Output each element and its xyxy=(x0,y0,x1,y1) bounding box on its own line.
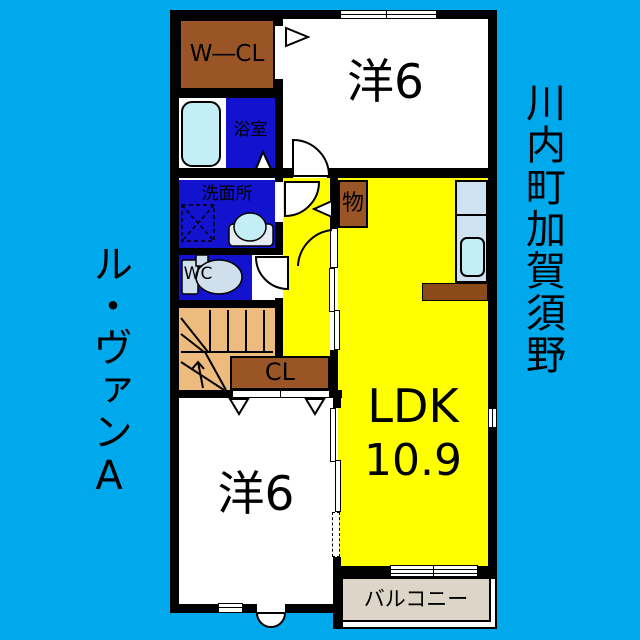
wall-mid-horiz-b xyxy=(327,168,488,178)
slide-door-hall-2 xyxy=(334,310,340,350)
ldk-size-label: 10.9 xyxy=(338,438,488,484)
swing-door-leaf xyxy=(330,228,338,268)
floorplan-canvas: W―CL 浴室 洗面所 WC 物 CL 洋6 洋6 LDK 10.9 バルコニー… xyxy=(0,0,640,640)
washroom-label: 洗面所 xyxy=(179,186,275,204)
window-balcony-tick xyxy=(433,565,434,577)
open-wall-dashed xyxy=(332,512,340,557)
closet-door-band xyxy=(232,390,330,398)
window-balcony-line1 xyxy=(390,569,478,570)
wall-bottom-a xyxy=(170,604,218,613)
wall-col-b xyxy=(275,80,283,182)
ldk-label: LDK xyxy=(338,382,488,430)
wcl-label: W―CL xyxy=(179,42,275,66)
bath-label: 浴室 xyxy=(226,122,275,140)
entry-door-opening xyxy=(257,604,285,613)
wall-under-wcl xyxy=(179,90,275,98)
window-right-line xyxy=(492,408,493,428)
wall-left xyxy=(170,10,179,613)
western-top-label: 洋6 xyxy=(283,58,488,107)
window-top-line xyxy=(340,14,437,15)
wcl-door-opening xyxy=(275,25,283,80)
window-bottom-line xyxy=(218,607,243,608)
wall-col-c xyxy=(275,222,283,255)
wall-top-a xyxy=(170,10,340,19)
closet-label: CL xyxy=(230,360,330,385)
building-name-label: ル・ヴァンA xyxy=(80,243,138,501)
window-balcony-line2 xyxy=(390,573,478,574)
entry-door-arc xyxy=(257,613,285,627)
kitchen-divider xyxy=(455,214,488,216)
western-bottom-label: 洋6 xyxy=(179,470,333,519)
window-bottom xyxy=(218,603,243,613)
wall-hall-ldk-a xyxy=(330,178,338,228)
window-top-tick xyxy=(386,10,387,19)
kitchen-counter xyxy=(422,283,488,301)
wall-bottom-b xyxy=(243,604,257,613)
wall-under-stairs-a xyxy=(179,390,232,398)
wall-right-a xyxy=(488,10,497,408)
storage-label: 物 xyxy=(338,192,368,215)
slide-door-west-1 xyxy=(330,408,336,462)
closet-door-tick xyxy=(280,390,281,398)
window-balcony xyxy=(390,565,478,577)
wall-right-b xyxy=(488,428,497,577)
wall-under-washroom xyxy=(179,248,275,255)
wall-under-wc xyxy=(179,300,275,308)
wall-hall-ldk-b xyxy=(330,350,338,398)
wc-label: WC xyxy=(181,266,215,284)
kitchen-unit xyxy=(455,180,488,283)
balcony-label: バルコニー xyxy=(341,588,491,610)
address-label: 川内町加賀須野 xyxy=(513,82,571,376)
slide-door-hall-1 xyxy=(329,268,335,312)
